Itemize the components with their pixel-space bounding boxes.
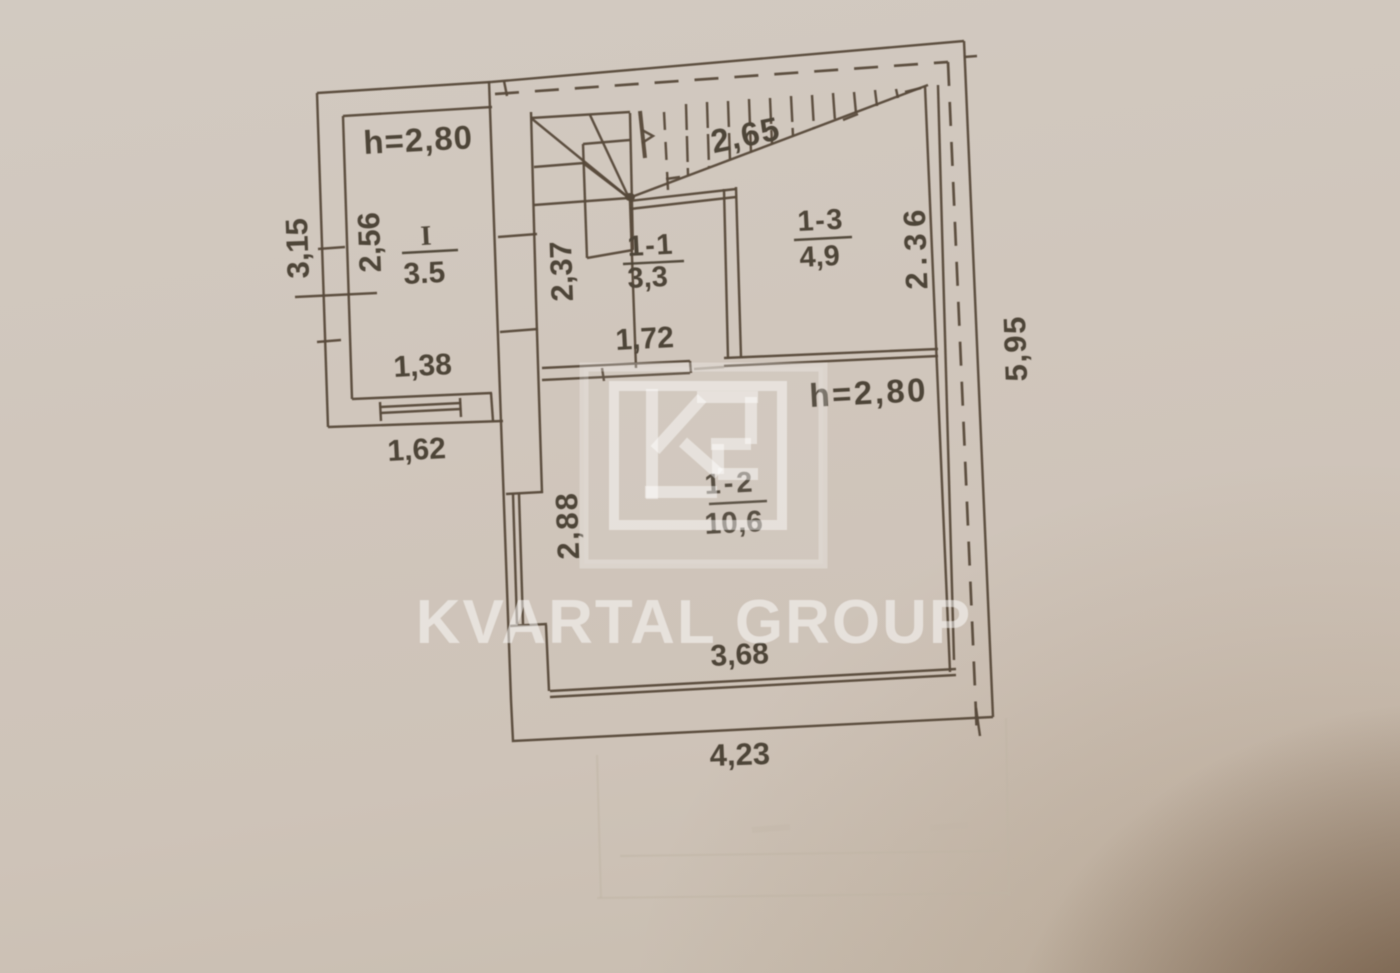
svg-text:KVARTAL GROUP: KVARTAL GROUP bbox=[416, 588, 972, 657]
svg-text:h=2,80: h=2,80 bbox=[362, 118, 473, 161]
svg-text:3.5: 3.5 bbox=[403, 256, 446, 291]
svg-text:4,9: 4,9 bbox=[799, 240, 841, 274]
svg-text:3,3: 3,3 bbox=[627, 261, 669, 295]
svg-text:2.36: 2.36 bbox=[897, 203, 935, 291]
svg-text:1-3: 1-3 bbox=[797, 204, 845, 238]
svg-text:1-1: 1-1 bbox=[627, 229, 675, 263]
svg-text:1,62: 1,62 bbox=[387, 432, 447, 468]
svg-text:5,95: 5,95 bbox=[997, 315, 1034, 383]
svg-text:1,38: 1,38 bbox=[393, 348, 453, 384]
svg-text:2,37: 2,37 bbox=[543, 241, 580, 303]
svg-text:2,65: 2,65 bbox=[707, 109, 783, 160]
svg-text:2,56: 2,56 bbox=[351, 212, 388, 274]
svg-text:3,15: 3,15 bbox=[279, 218, 316, 280]
svg-text:4,23: 4,23 bbox=[709, 736, 771, 773]
svg-text:I: I bbox=[420, 220, 433, 252]
svg-text:1,72: 1,72 bbox=[615, 321, 675, 357]
